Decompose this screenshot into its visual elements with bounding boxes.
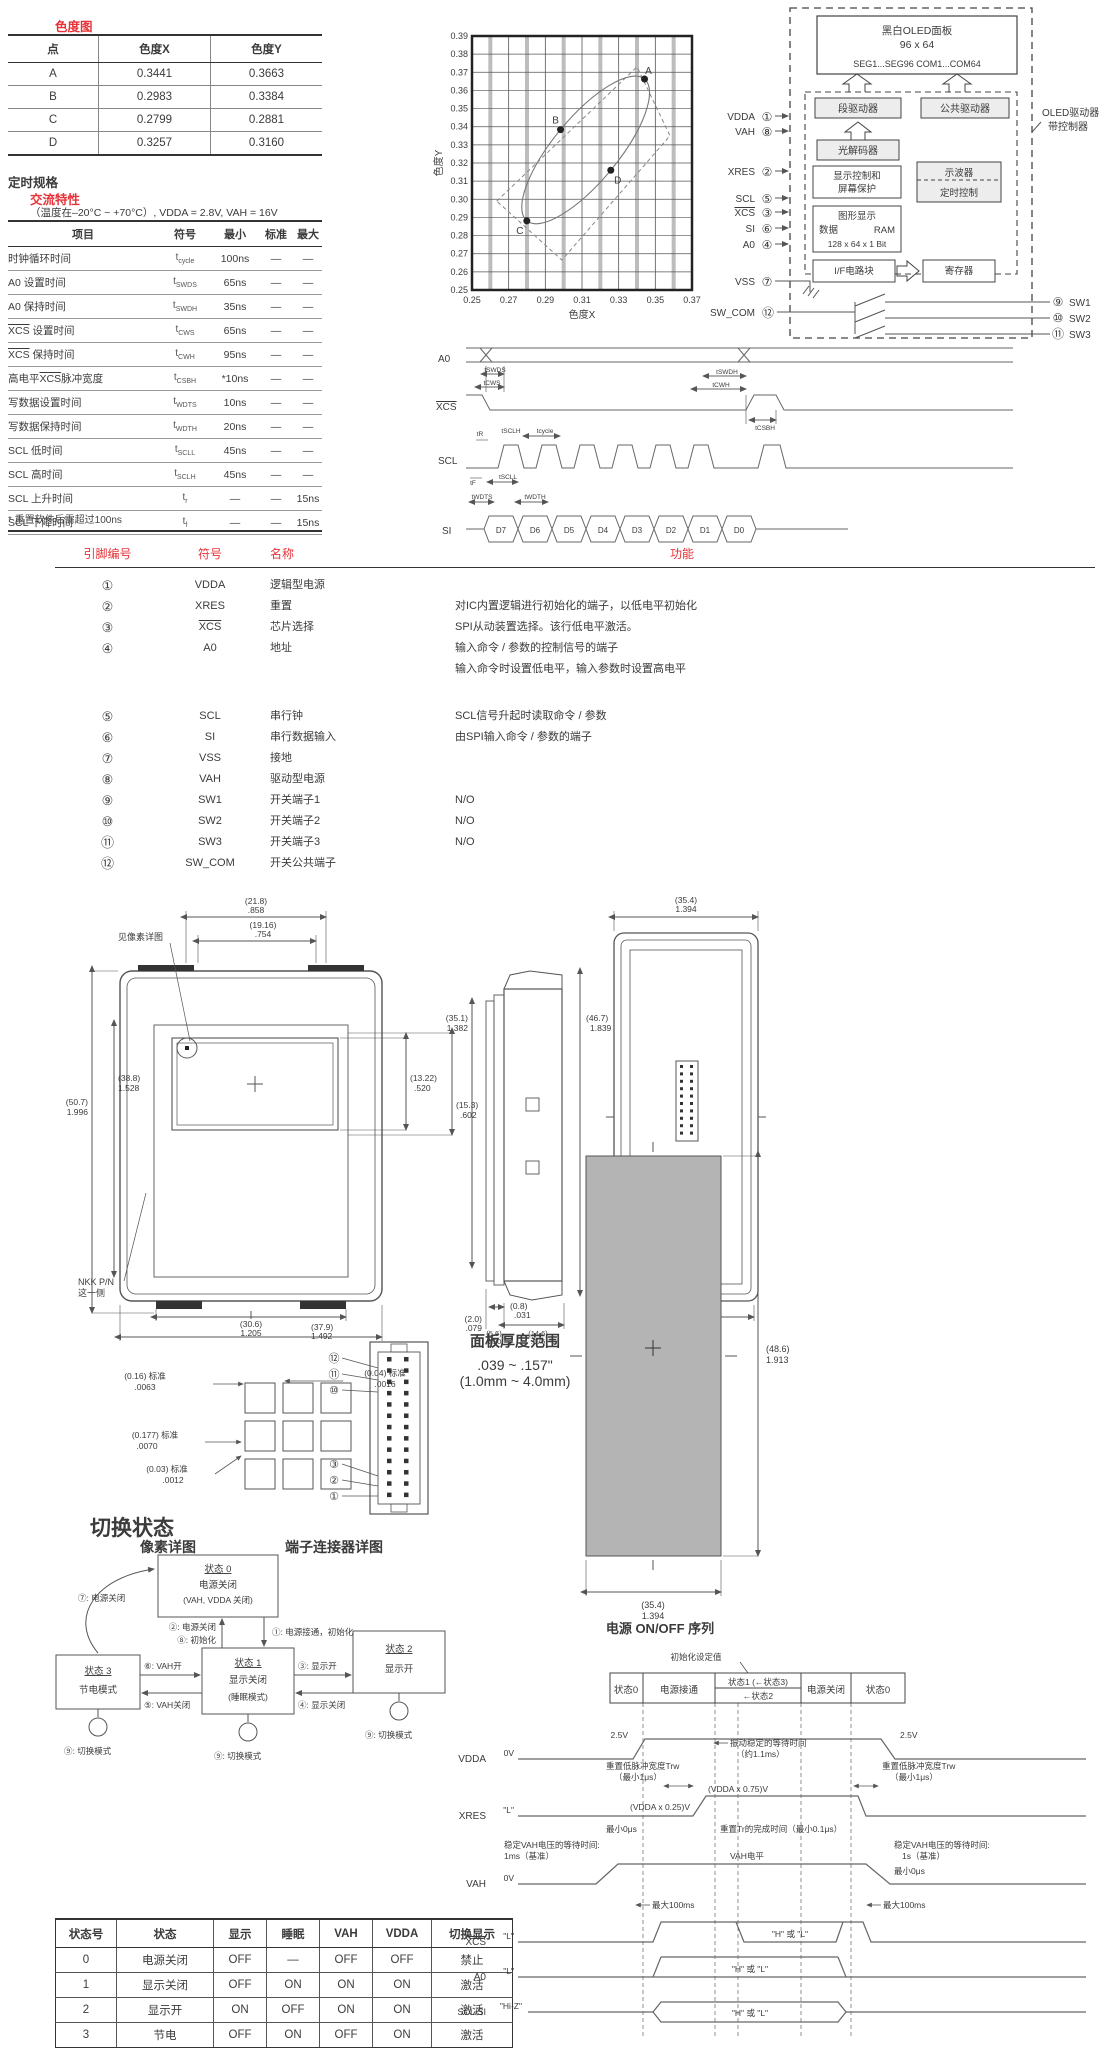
table-cell: ON [320,1998,373,2023]
pin-symbol: VAH [160,769,260,790]
column-header: 最大 [294,222,322,246]
svg-text:电源关闭: 电源关闭 [199,1579,237,1591]
pin-name: 驱动型电源 [260,769,455,790]
svg-text:⑨: 切换模式: ⑨: 切换模式 [214,1751,262,1761]
svg-text:这一侧: 这一侧 [78,1287,105,1298]
svg-text:0V: 0V [504,1873,515,1883]
item-cell: 高电平XCS脉冲宽度 [8,367,158,390]
pin-function-line: SPI从动装置选择。该行低电平激活。 [455,617,1095,638]
pin-name: 逻辑型电源 [260,575,455,596]
decoder: 光解码器 [838,144,878,157]
table-cell: 电源关闭 [117,1948,214,1973]
see-pixel-label: 见像素详图 [118,931,163,942]
pin-name: 芯片选择 [260,617,455,638]
table-cell: 2 [56,1998,117,2023]
item-cell: XCS 设置时间 [8,319,158,342]
svg-text:状态1 (←状态3): 状态1 (←状态3) [728,1677,788,1687]
x-tick-label: 0.31 [573,295,591,305]
pin-symbol: SI [160,727,260,748]
svg-text:状态 1: 状态 1 [235,1657,262,1669]
si-data-bit: D5 [564,526,575,535]
pin-name: 开关端子1 [260,790,455,811]
svg-text:⑪: ⑪ [329,1368,340,1381]
svg-text:⑩: ⑩ [329,1385,339,1397]
svg-text:.031: .031 [514,1310,531,1320]
pin-function-line: N/O [455,811,1095,832]
pin-number: ⑥ [55,727,160,748]
pin-function-line: 输入命令 / 参数的控制信号的端子 [455,638,1095,659]
svg-text:(15.3): (15.3) [456,1100,478,1110]
svg-text:②: ② [762,165,773,179]
pin-vss: VSS [735,277,755,288]
item-cell: SCL 上升时间 [8,487,158,510]
x-tick-label: 0.29 [537,295,555,305]
min-cell: 35ns [212,297,258,317]
symbol-cell: tWDTH [158,416,212,437]
item-cell: SCL 低时间 [8,439,158,462]
svg-text:"H" 或 "L": "H" 或 "L" [732,2008,768,2018]
svg-text:⑨: ⑨ [1053,295,1064,309]
table-cell: OFF [267,1998,320,2023]
seq-xcs: XCS [465,1937,486,1948]
svg-text:.0063: .0063 [134,1382,156,1392]
pin-function: N/O [455,832,1095,853]
pin-function: SPI从动装置选择。该行低电平激活。 [455,617,1095,638]
table-cell: 显示开 [117,1998,214,2023]
ac-table: 项目符号最小标准最大时钟循环时间tcycle100ns——A0 设置时间tSWD… [8,220,322,535]
pin-row: ⑫SW_COM开关公共端子 [55,853,1095,874]
table-row: C0.27990.2881 [8,109,322,132]
svg-text:1ms（基准）: 1ms（基准） [504,1851,554,1861]
max-cell: 15ns [294,489,322,509]
pin-xcs: XCS [734,208,755,219]
svg-text:tCWH: tCWH [712,382,730,389]
pin-table: ①VDDA逻辑型电源②XRES重置对IC内置逻辑进行初始化的端子，以低电平初始化… [55,575,1095,874]
svg-text:tcycle: tcycle [537,428,554,435]
svg-text:tR: tR [477,431,484,438]
pin-symbol: SW1 [160,790,260,811]
svg-text:电源接通: 电源接通 [660,1684,699,1696]
pin-function: SCL信号升起时读取命令 / 参数 [455,706,1095,727]
min-cell: 45ns [212,441,258,461]
pin-row: ⑤SCL串行钟SCL信号升起时读取命令 / 参数 [55,706,1095,727]
svg-text:(46.7): (46.7) [586,1013,608,1023]
svg-text:初始化设定值: 初始化设定值 [670,1652,722,1662]
min-cell: 10ns [212,393,258,413]
table-cell: 节电 [117,2023,214,2048]
svg-text:带控制器: 带控制器 [1048,120,1088,133]
svg-text:1.394: 1.394 [675,904,697,914]
table-cell: 0.2983 [98,86,210,108]
timing-control: 定时控制 [940,187,978,199]
svg-text:(VDDA x 0.75)V: (VDDA x 0.75)V [708,1784,768,1794]
y-tick-label: 0.32 [450,158,468,168]
max-cell: — [294,369,322,389]
si-data-bit: D2 [666,526,677,535]
table-cell: OFF [320,2023,373,2048]
si-data-bit: D3 [632,526,643,535]
com-driver: 公共驱动器 [940,103,990,115]
symbol-cell: tcycle [158,248,212,269]
svg-text:显示关闭: 显示关闭 [229,1674,267,1686]
symbol-cell: tSWDS [158,272,212,293]
pin-function: 对IC内置逻辑进行初始化的端子，以低电平初始化 [455,596,1095,617]
svg-text:.602: .602 [460,1110,477,1120]
svg-text:tSWDS: tSWDS [484,367,506,374]
data-point-B [557,126,564,133]
svg-text:显示控制和: 显示控制和 [833,170,881,182]
x-tick-label: 0.27 [500,295,518,305]
table-cell: 0.2799 [98,109,210,131]
std-cell: — [258,321,294,341]
svg-text:状态 2: 状态 2 [386,1643,413,1655]
symbol-cell: tWDTS [158,392,212,413]
max-cell: — [294,417,322,437]
svg-text:⑥: VAH开: ⑥: VAH开 [144,1661,182,1671]
svg-text:⑧: 初始化: ⑧: 初始化 [177,1635,216,1645]
table-cell: 0.3663 [210,63,322,85]
svg-text:tF: tF [470,480,476,487]
max-cell: — [294,441,322,461]
svg-text:⑫: ⑫ [329,1352,340,1365]
min-cell: 20ns [212,417,258,437]
seq-a0: A0 [474,1972,487,1983]
symbol-cell: tCSBH [158,368,212,389]
svg-text:.754: .754 [255,929,272,939]
svg-text:③: ③ [329,1459,339,1471]
svg-text:（约1.1ms）: （约1.1ms） [736,1749,785,1759]
column-header: 状态 [117,1919,214,1948]
column-header: 项目 [8,222,158,246]
svg-text:1.528: 1.528 [118,1083,140,1093]
table-row: 写数据设置时间tWDTS10ns—— [8,391,322,415]
svg-text:(38.8): (38.8) [118,1073,140,1083]
min-cell: 100ns [212,249,258,269]
svg-text:"L": "L" [503,1805,514,1815]
symbol-cell: tSWDH [158,296,212,317]
pin-symbol: SCL [160,706,260,727]
pin-function: N/O [455,811,1095,832]
svg-text:①: ① [762,110,773,124]
svg-text:⑤: ⑤ [762,192,773,206]
column-header: VAH [320,1919,373,1948]
item-cell: A0 保持时间 [8,295,158,318]
svg-text:稳定VAH电压的等待时间:: 稳定VAH电压的等待时间: [894,1840,990,1850]
table-cell: OFF [214,2023,267,2048]
table-header-row: 项目符号最小标准最大 [8,222,322,247]
pin-number: ① [55,575,160,596]
pin-number: ⑨ [55,790,160,811]
svg-text:④: ④ [762,238,773,252]
pin-name: 地址 [260,638,455,680]
table-row: SCL 高时间tSCLH45ns—— [8,463,322,487]
svg-text:⑪: ⑪ [1052,327,1064,341]
column-header: 点 [8,36,98,62]
pin-row: ①VDDA逻辑型电源 [55,575,1095,596]
table-row: 时钟循环时间tcycle100ns—— [8,247,322,271]
table-cell: OFF [320,1948,373,1973]
nkk-label: NKK P/N [78,1277,114,1287]
svg-text:(VDDA x 0.25)V: (VDDA x 0.25)V [630,1802,690,1812]
pin-name: 重置 [260,596,455,617]
svg-text:(48.6): (48.6) [766,1344,790,1354]
table-cell: ON [214,1998,267,2023]
svg-text:VAH电平: VAH电平 [730,1851,764,1861]
svg-text:"Hi-Z": "Hi-Z" [500,2001,522,2011]
y-axis-label: 色度Y [432,149,445,176]
svg-text:1.382: 1.382 [447,1023,469,1033]
svg-text:tSCLH: tSCLH [501,428,520,435]
symbol-cell: tCWH [158,344,212,365]
table-cell: ON [267,1973,320,1998]
svg-text:(VAH, VDDA 关闭): (VAH, VDDA 关闭) [183,1595,253,1605]
max-cell: — [294,273,322,293]
state-diagram: 状态 0 电源关闭 (VAH, VDDA 关闭) 状态 3 节电模式 状态 1 … [50,1545,490,1917]
x-axis-label: 色度X [569,308,596,321]
pin-number: ③ [55,617,160,638]
pin-name: 开关端子3 [260,832,455,853]
svg-text:③: ③ [762,206,773,220]
svg-text:⑨: 切换模式: ⑨: 切换模式 [365,1730,413,1740]
panel-label: 黑白OLED面板 [882,24,953,37]
pin-scl: SCL [736,194,756,205]
svg-text:tCSBH: tCSBH [755,425,775,432]
std-cell: — [258,249,294,269]
std-cell: — [258,273,294,293]
svg-text:←状态2: ←状态2 [743,1691,774,1701]
svg-text:"L": "L" [503,1931,514,1941]
point-label: C [516,226,523,237]
pin-row: ⑪SW3开关端子3N/O [55,832,1095,853]
table-cell: OFF [373,1948,432,1973]
pin-row: ②XRES重置对IC内置逻辑进行初始化的端子，以低电平初始化 [55,596,1095,617]
pin-row: ⑩SW2开关端子2N/O [55,811,1095,832]
y-tick-label: 0.38 [450,49,468,59]
svg-text:⑤: VAH关闭: ⑤: VAH关闭 [144,1700,190,1710]
svg-text:1.839: 1.839 [590,1023,612,1033]
table-cell: 0.2881 [210,109,322,131]
svg-text:①: 电源接通，初始化: ①: 电源接通，初始化 [272,1627,354,1637]
pin-name: 开关公共端子 [260,853,455,874]
column-header: 最小 [212,222,258,246]
pin-symbol: SW2 [160,811,260,832]
svg-text:状态 3: 状态 3 [85,1665,112,1677]
svg-text:重置低脉冲宽度Trw: 重置低脉冲宽度Trw [882,1761,956,1771]
svg-text:最大100ms: 最大100ms [883,1900,926,1910]
table-cell: ON [373,1973,432,1998]
svg-text:显示开: 显示开 [385,1664,414,1675]
y-tick-label: 0.39 [450,31,468,41]
max-cell: — [294,321,322,341]
table-cell: 显示关闭 [117,1973,214,1998]
table-cell: 0.3384 [210,86,322,108]
std-cell: — [258,441,294,461]
seq-xres: XRES [459,1811,487,1822]
svg-text:⑦: 电源关闭: ⑦: 电源关闭 [78,1593,125,1603]
datasheet-page: 色度图 点色度X色度YA0.34410.3663B0.29830.3384C0.… [0,0,1100,2048]
pin-function-line: 输入命令时设置低电平，输入参数时设置高电平 [455,659,1095,680]
si-data-bit: D6 [530,526,541,535]
sig-scl: SCL [438,456,458,467]
pin-symbol: VSS [160,748,260,769]
pin-number: ⑫ [55,853,160,874]
std-cell: — [258,417,294,437]
min-cell: 95ns [212,345,258,365]
svg-text:最小0μs: 最小0μs [894,1866,925,1876]
svg-text:稳定VAH电压的等待时间:: 稳定VAH电压的等待时间: [504,1840,600,1850]
min-cell: 45ns [212,465,258,485]
seg-driver: 段驱动器 [838,102,878,115]
block-diagram: 黑白OLED面板 96 x 64 SEG1...SEG96 COM1...COM… [605,4,1100,348]
y-tick-label: 0.28 [450,231,468,241]
table-row: A0 设置时间tSWDS65ns—— [8,271,322,295]
pin-si: SI [746,224,755,235]
pin-number: ⑧ [55,769,160,790]
table-cell: 0.3257 [98,132,210,154]
svg-text:⑥: ⑥ [762,222,773,236]
y-tick-label: 0.37 [450,67,468,77]
svg-text:"L": "L" [503,1966,514,1976]
pin-swcom: SW_COM [710,308,755,319]
table-cell: ON [267,2023,320,2048]
pin-row: ③XCS芯片选择SPI从动装置选择。该行低电平激活。 [55,617,1095,638]
svg-text:②: 电源关闭: ②: 电源关闭 [169,1622,216,1632]
si-data-bit: D0 [734,526,745,535]
std-cell: — [258,393,294,413]
si-data-bit: D1 [700,526,711,535]
pin-number: ⑩ [55,811,160,832]
svg-text:屏幕保护: 屏幕保护 [838,183,876,195]
svg-text:(35.4): (35.4) [641,1600,665,1610]
pin-row: ⑦VSS接地 [55,748,1095,769]
table-cell: B [8,86,98,108]
pin-function-line: N/O [455,790,1095,811]
table-cell: ON [373,2023,432,2048]
table-cell: 0 [56,1948,117,1973]
table-cell: — [267,1948,320,1973]
svg-text:最小0μs: 最小0μs [606,1824,637,1834]
sig-si: SI [442,526,451,537]
svg-text:.0070: .0070 [136,1441,158,1451]
si-data-bit: D7 [496,526,507,535]
svg-text:"H" 或 "L": "H" 或 "L" [732,1964,768,1974]
svg-text:.520: .520 [414,1083,431,1093]
svg-text:(0.16) 标准: (0.16) 标准 [124,1371,166,1381]
max-cell: — [294,297,322,317]
svg-text:③: 显示开: ③: 显示开 [298,1661,337,1671]
min-cell: 65ns [212,321,258,341]
table-cell: A [8,63,98,85]
table-cell: 3 [56,2023,117,2048]
svg-text:1.913: 1.913 [766,1355,789,1365]
symbol-cell: tSCLL [158,440,212,461]
max-cell: — [294,393,322,413]
max-cell: — [294,465,322,485]
svg-text:96 x 64: 96 x 64 [900,39,935,51]
pin-function: 输入命令 / 参数的控制信号的端子输入命令时设置低电平，输入参数时设置高电平 [455,638,1095,680]
svg-text:⑨: 切换模式: ⑨: 切换模式 [64,1746,112,1756]
data-point-C [523,217,530,224]
power-sequence: VDDA XRES VAH XCS A0 SCL/SI 初始化设定值 状态0 电… [438,1646,1100,2048]
svg-text:.858: .858 [248,905,265,915]
svg-text:RAM: RAM [874,225,895,236]
svg-text:图形显示: 图形显示 [838,210,876,222]
chroma-table: 点色度X色度YA0.34410.3663B0.29830.3384C0.2799… [8,34,322,156]
item-cell: 写数据设置时间 [8,391,158,414]
svg-text:重置低脉冲宽度Trw: 重置低脉冲宽度Trw [606,1761,680,1771]
item-cell: XCS 保持时间 [8,343,158,366]
if-block: I/F电路块 [834,265,874,277]
table-row: XCS 保持时间tCWH95ns—— [8,343,322,367]
pin-a0: A0 [743,240,756,251]
pin-sw1: SW1 [1069,298,1091,309]
table-cell: C [8,109,98,131]
pin-vdda: VDDA [727,112,755,123]
y-tick-label: 0.29 [450,212,468,222]
pin-function [455,575,1095,596]
svg-text:tWDTH: tWDTH [524,494,546,501]
svg-text:(50.7): (50.7) [66,1097,88,1107]
pin-function [455,748,1095,769]
table-cell: OFF [214,1973,267,1998]
y-tick-label: 0.36 [450,85,468,95]
svg-text:⑫: ⑫ [762,306,774,320]
svg-text:数据: 数据 [819,224,839,236]
si-data-bit: D4 [598,526,609,535]
svg-text:128 x 64 x 1 Bit: 128 x 64 x 1 Bit [828,239,887,249]
column-header: 状态号 [56,1919,117,1948]
ac-condition: （温度在–20°C ~ +70°C）, VDDA = 2.8V, VAH = 1… [30,205,278,220]
svg-text:重置Tr的完成时间（最小0.1μs）: 重置Tr的完成时间（最小0.1μs） [720,1824,842,1834]
pin-function-line: 对IC内置逻辑进行初始化的端子，以低电平初始化 [455,596,1095,617]
controller-label: OLED驱动器 [1042,107,1099,119]
column-header: 睡眠 [267,1919,320,1948]
svg-text:（最小1μs）: （最小1μs） [890,1772,938,1782]
min-cell: 65ns [212,273,258,293]
svg-text:状态0: 状态0 [614,1684,638,1696]
svg-text:tSCLL: tSCLL [499,474,517,481]
svg-text:2.5V: 2.5V [611,1730,629,1740]
svg-text:②: ② [329,1475,339,1487]
svg-text:状态0: 状态0 [866,1684,890,1696]
svg-text:1.996: 1.996 [67,1107,89,1117]
pin-number: ⑦ [55,748,160,769]
pin-vah: VAH [735,127,755,138]
x-tick-label: 0.25 [463,295,481,305]
std-cell: — [258,369,294,389]
column-header: 色度X [98,36,210,62]
pin-function [455,769,1095,790]
pin-name: 接地 [260,748,455,769]
table-cell: 1 [56,1973,117,1998]
pin-symbol: VDDA [160,575,260,596]
column-header: 显示 [214,1919,267,1948]
max-cell: — [294,345,322,365]
pin-row: ④A0地址输入命令 / 参数的控制信号的端子输入命令时设置低电平，输入参数时设置… [55,638,1095,680]
timing-waveform: tSWDS tCWS tSWDH tCWH tCSBH tR tSCLH tcy… [428,336,1028,568]
svg-text:(13.22): (13.22) [410,1073,437,1083]
table-row: A0.34410.3663 [8,63,322,86]
item-cell: 时钟循环时间 [8,247,158,270]
table-cell: 0.3441 [98,63,210,85]
svg-text:⑧: ⑧ [762,125,773,139]
seq-sclsi: SCL/SI [457,2007,486,2017]
item-cell: SCL 高时间 [8,463,158,486]
svg-text:最大100ms: 最大100ms [652,1900,695,1910]
table-row: A0 保持时间tSWDH35ns—— [8,295,322,319]
column-header: 标准 [258,222,294,246]
symbol-cell: tr [158,488,212,509]
